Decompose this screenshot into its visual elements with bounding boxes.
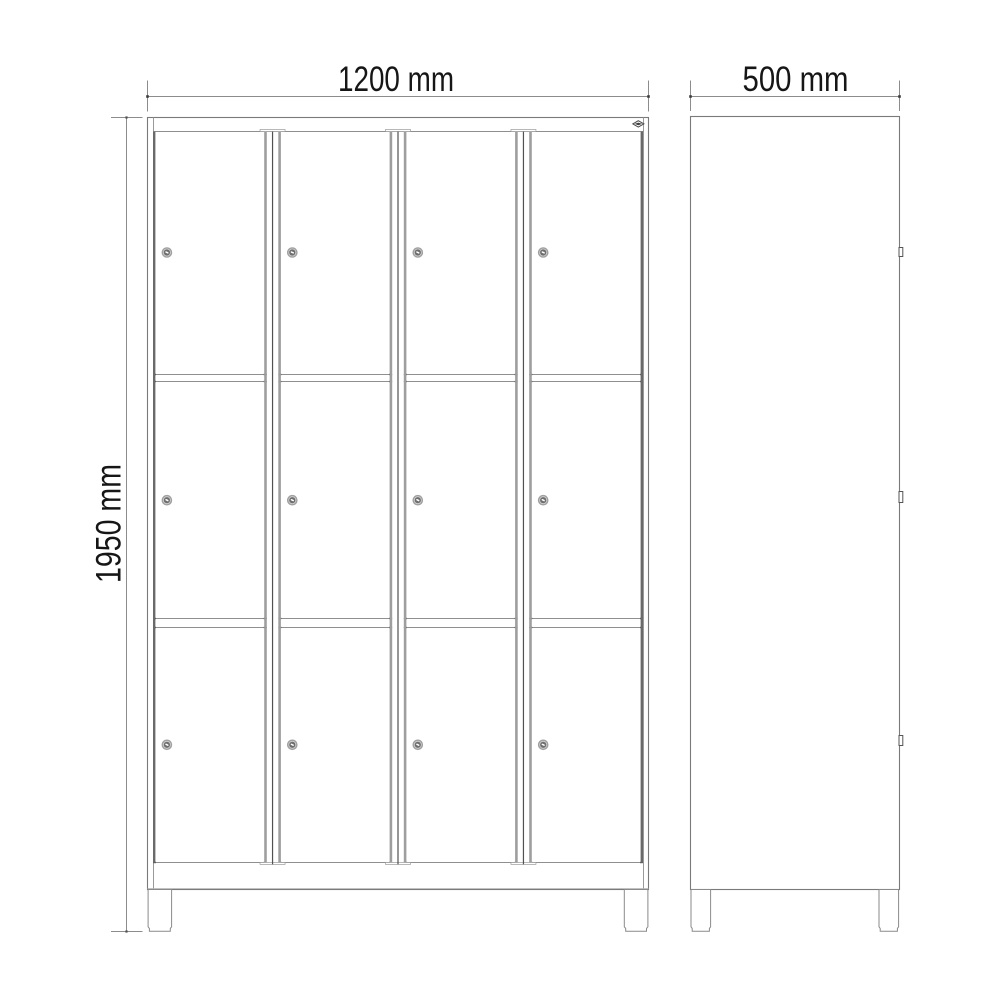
svg-text:1950 mm: 1950 mm	[88, 464, 128, 583]
svg-text:500 mm: 500 mm	[743, 59, 849, 99]
svg-text:1200 mm: 1200 mm	[338, 59, 454, 99]
